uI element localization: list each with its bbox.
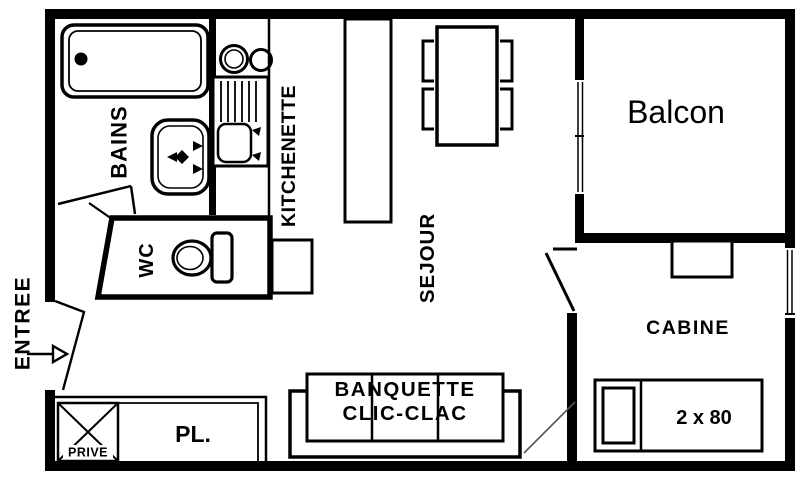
bains-door-leaf [58,186,135,214]
label-sejour: SEJOUR [416,213,439,303]
wall-right-lower [785,318,795,471]
chair [500,89,512,129]
cabinet [272,240,312,293]
label-banquette-line1: BANQUETTE [334,378,475,401]
label-wc: WC [136,242,158,277]
label-banquette-line2: CLIC-CLAC [342,402,467,425]
label-kitchenette: KITCHENETTE [278,85,300,227]
wardrobe [672,241,732,277]
wall-cabine-left [567,313,577,461]
wall-right-upper [785,9,795,248]
wall-left-upper [45,9,55,302]
chair [500,41,512,81]
wall-balcony-left-upper [575,9,584,80]
label-bains: BAINS [107,105,132,178]
floor-plan-page: Balcon CABINE 2 x 80 BAINS [0,0,800,479]
kitchen-bar-counter [345,19,391,222]
label-placard: PL. [175,421,211,447]
floor-plan: Balcon CABINE 2 x 80 BAINS [0,0,800,479]
chair [423,89,434,129]
window-cabine-right [785,250,795,314]
wc-door-leaf [89,203,112,219]
wall-top [45,9,795,19]
wall-left-lower [45,390,55,471]
label-cabine: CABINE [646,317,730,339]
dining-table [437,27,497,145]
cabine-door-leaf [546,249,577,311]
dining-table-set [423,27,512,145]
prive-box: PRIVE [58,403,118,461]
kitchen-sink [213,77,268,166]
bathtub-drain [75,53,88,66]
chair [423,41,434,81]
label-bed-size: 2 x 80 [676,407,732,429]
toilet-tank [212,233,232,282]
wall-bottom [45,461,795,471]
stove-burners [221,46,272,73]
window-balcony-door [575,82,584,192]
wc-room: WC [89,203,270,297]
bed-pillow [603,388,634,443]
entrance-door-leaf [55,301,84,390]
label-balcon: Balcon [627,94,725,130]
label-prive: PRIVE [68,445,108,459]
label-entree: ENTREE [11,276,34,370]
bathtub [62,25,208,97]
sofa-bed: BANQUETTE CLIC-CLAC [290,374,520,457]
washbasin [152,120,209,194]
